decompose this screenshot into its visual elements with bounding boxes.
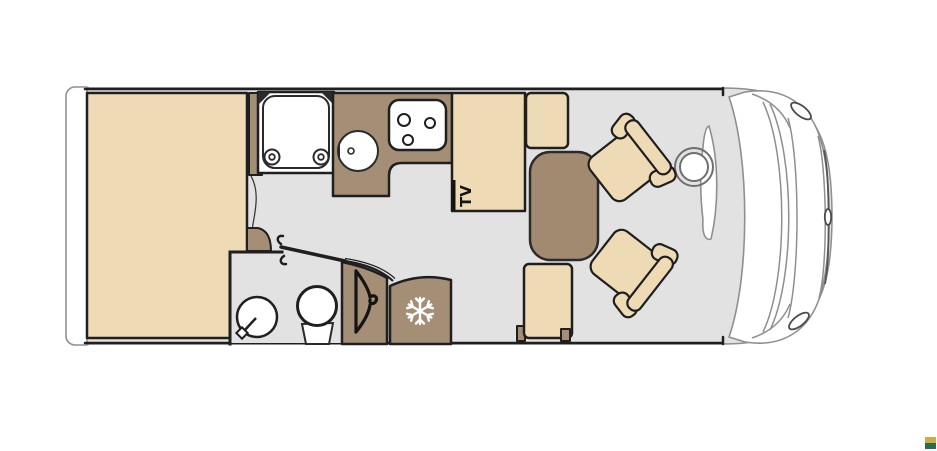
hob-burner-2 [425,118,435,128]
dinette-table [530,152,598,260]
hob-burner-1 [398,114,410,126]
brand-mark [925,437,936,449]
toilet-bowl [298,287,337,326]
wardrobe [342,262,387,344]
rear-bed [87,93,247,338]
wardrobe-body [342,262,387,344]
tv-cabinet: TV [452,93,525,211]
floorplan-canvas: TV [0,0,937,451]
dinette-bench-bottom [524,264,572,338]
shower-drain-right-dot [318,154,324,160]
brand-mark-green [925,443,936,449]
hob [389,100,446,150]
dinette-bench-top [526,93,568,148]
refrigerator [390,277,451,344]
bench-bracket-right [561,329,570,341]
shower-drain-left-dot [269,154,275,160]
brand-mark-gold [925,437,936,443]
shower [249,92,334,175]
motorhome-floorplan: TV [0,0,937,451]
kitchen-sink [338,131,378,171]
steering-wheel-icon [675,148,713,186]
bumper-detail [825,209,831,225]
tv-label: TV [457,185,475,207]
hob-burner-3 [403,135,413,145]
